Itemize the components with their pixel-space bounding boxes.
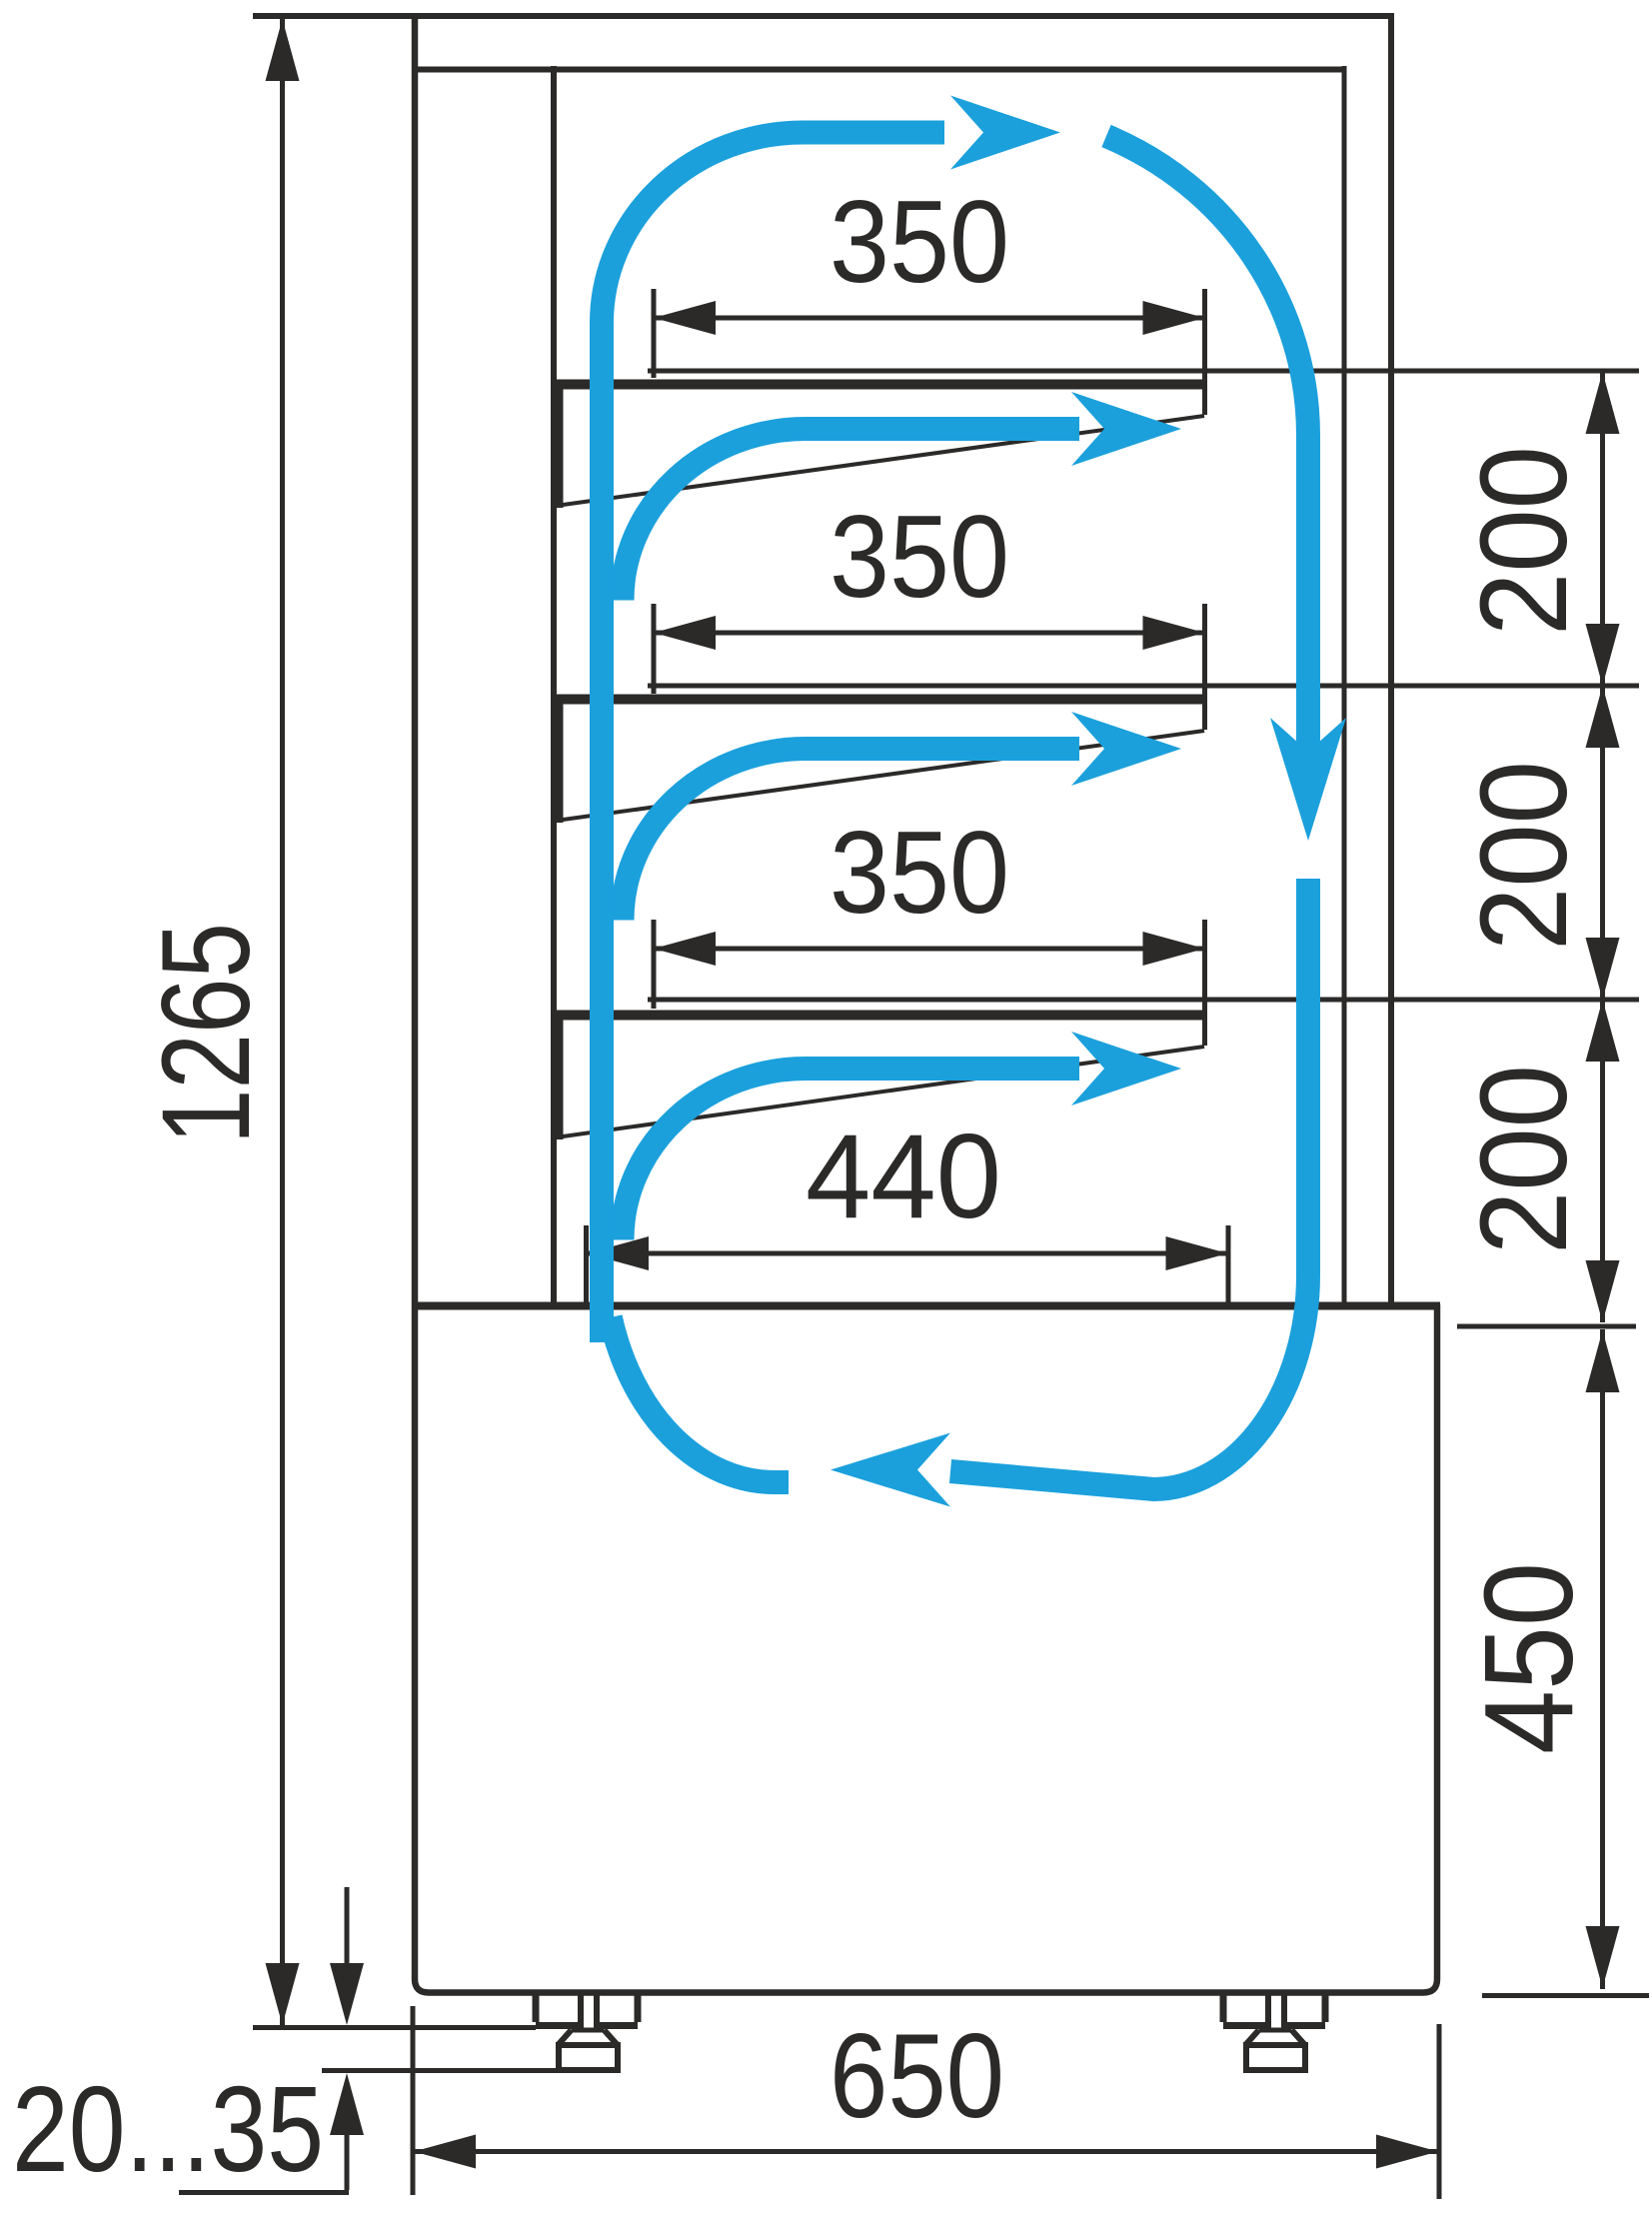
svg-text:20...35: 20...35 — [12, 2061, 324, 2197]
svg-text:200: 200 — [1456, 1065, 1593, 1254]
svg-text:200: 200 — [1456, 446, 1593, 636]
svg-text:650: 650 — [829, 2009, 1004, 2143]
svg-text:1265: 1265 — [137, 923, 276, 1144]
svg-text:350: 350 — [829, 176, 1009, 307]
svg-text:200: 200 — [1456, 761, 1593, 951]
svg-text:440: 440 — [806, 1109, 1001, 1243]
svg-text:350: 350 — [829, 491, 1009, 622]
svg-text:350: 350 — [829, 807, 1009, 938]
svg-text:450: 450 — [1458, 1562, 1599, 1754]
